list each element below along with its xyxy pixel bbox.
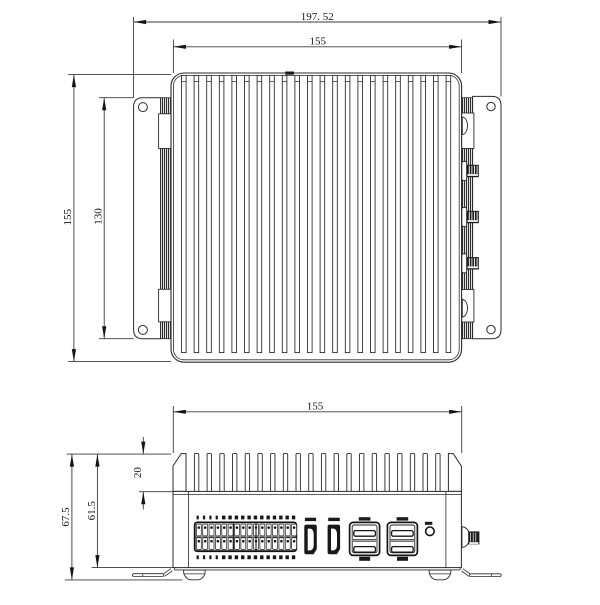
svg-text:197. 52: 197. 52 — [301, 11, 334, 23]
svg-text:155: 155 — [309, 35, 326, 47]
svg-text:155: 155 — [307, 400, 324, 412]
svg-text:20: 20 — [132, 467, 144, 479]
svg-text:61.5: 61.5 — [86, 501, 98, 521]
svg-text:155: 155 — [62, 209, 74, 226]
svg-text:67.5: 67.5 — [60, 507, 72, 527]
svg-text:130: 130 — [92, 208, 104, 225]
